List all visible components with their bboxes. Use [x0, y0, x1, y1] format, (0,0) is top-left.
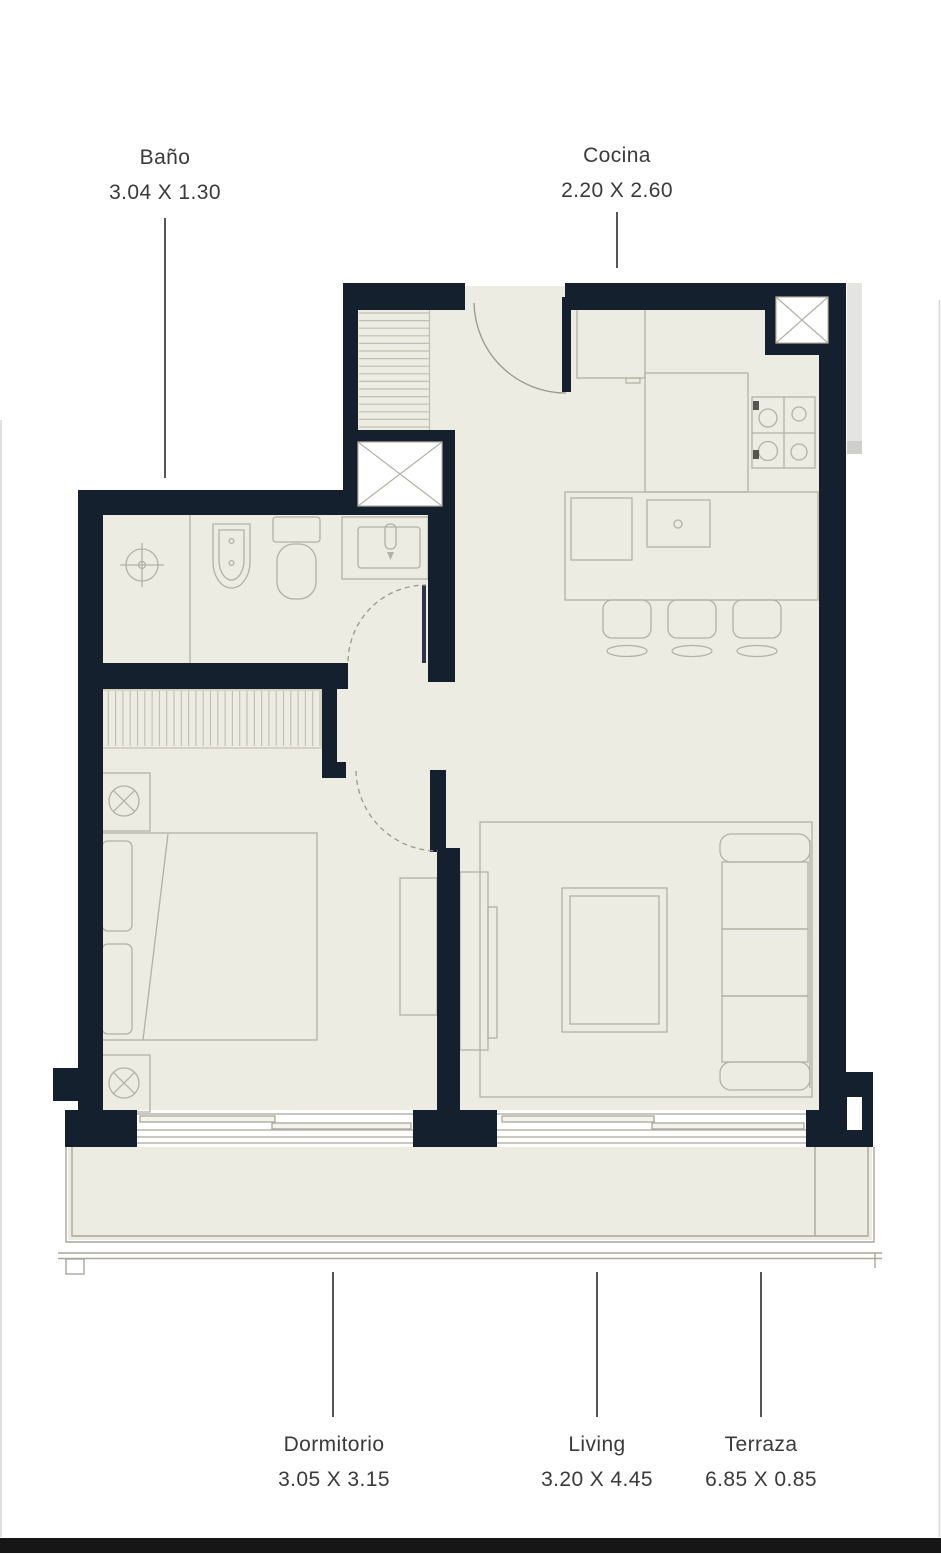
wall-hall-kitchen — [428, 497, 455, 682]
room-name: Terraza — [705, 1433, 817, 1457]
wall-top-left — [343, 283, 465, 310]
entry-door-leaf — [562, 297, 571, 392]
room-label-cocina: Cocina 2.20 X 2.60 — [561, 144, 673, 203]
room-label-bano: Baño 3.04 X 1.30 — [109, 146, 221, 205]
room-label-terraza: Terraza 6.85 X 0.85 — [705, 1433, 817, 1492]
wall-right-stub — [819, 1072, 873, 1147]
floor-plan-drawing — [0, 0, 941, 1555]
bottom-bar — [0, 1538, 941, 1553]
wall-bottom-middle — [413, 1110, 497, 1147]
terrace-foot-left — [66, 1259, 84, 1274]
room-dimensions: 6.85 X 0.85 — [705, 1468, 817, 1492]
room-name: Living — [541, 1433, 653, 1457]
room-dimensions: 3.05 X 3.15 — [278, 1468, 390, 1492]
shaft-top-right — [765, 283, 846, 355]
bathroom-door-leaf — [422, 585, 426, 663]
wall-left-stub — [53, 1068, 78, 1101]
wall-bathroom-top — [78, 490, 345, 515]
wall-stairwell — [343, 283, 358, 430]
room-dimensions: 3.04 X 1.30 — [109, 181, 221, 205]
room-label-dormitorio: Dormitorio 3.05 X 3.15 — [278, 1433, 390, 1492]
terrace-floor — [68, 1147, 872, 1240]
room-name: Cocina — [561, 144, 673, 168]
bedroom-window — [128, 1114, 422, 1143]
wall-door-jamb — [330, 762, 346, 778]
floor-plan-page: Baño 3.04 X 1.30 Cocina 2.20 X 2.60 Dorm… — [0, 0, 941, 1555]
living-window — [490, 1114, 812, 1143]
room-name: Baño — [109, 146, 221, 170]
room-dimensions: 3.20 X 4.45 — [541, 1468, 653, 1492]
exterior-wall-strip — [847, 283, 862, 454]
entry-threshold — [465, 286, 565, 310]
wall-bedroom-hall — [322, 666, 337, 778]
shaft-middle — [343, 430, 455, 515]
bedroom-door-leaf — [430, 770, 446, 852]
right-stub-window — [847, 1097, 862, 1130]
wall-bottom-left — [65, 1110, 137, 1147]
room-name: Dormitorio — [278, 1433, 390, 1457]
wall-bathroom-bottom — [98, 663, 348, 689]
room-dimensions: 2.20 X 2.60 — [561, 179, 673, 203]
wall-left — [78, 490, 103, 1147]
room-label-living: Living 3.20 X 4.45 — [541, 1433, 653, 1492]
wall-bedroom-living — [437, 848, 460, 1110]
wall-right — [819, 283, 846, 1147]
terrace-deck-edge — [58, 1253, 882, 1259]
